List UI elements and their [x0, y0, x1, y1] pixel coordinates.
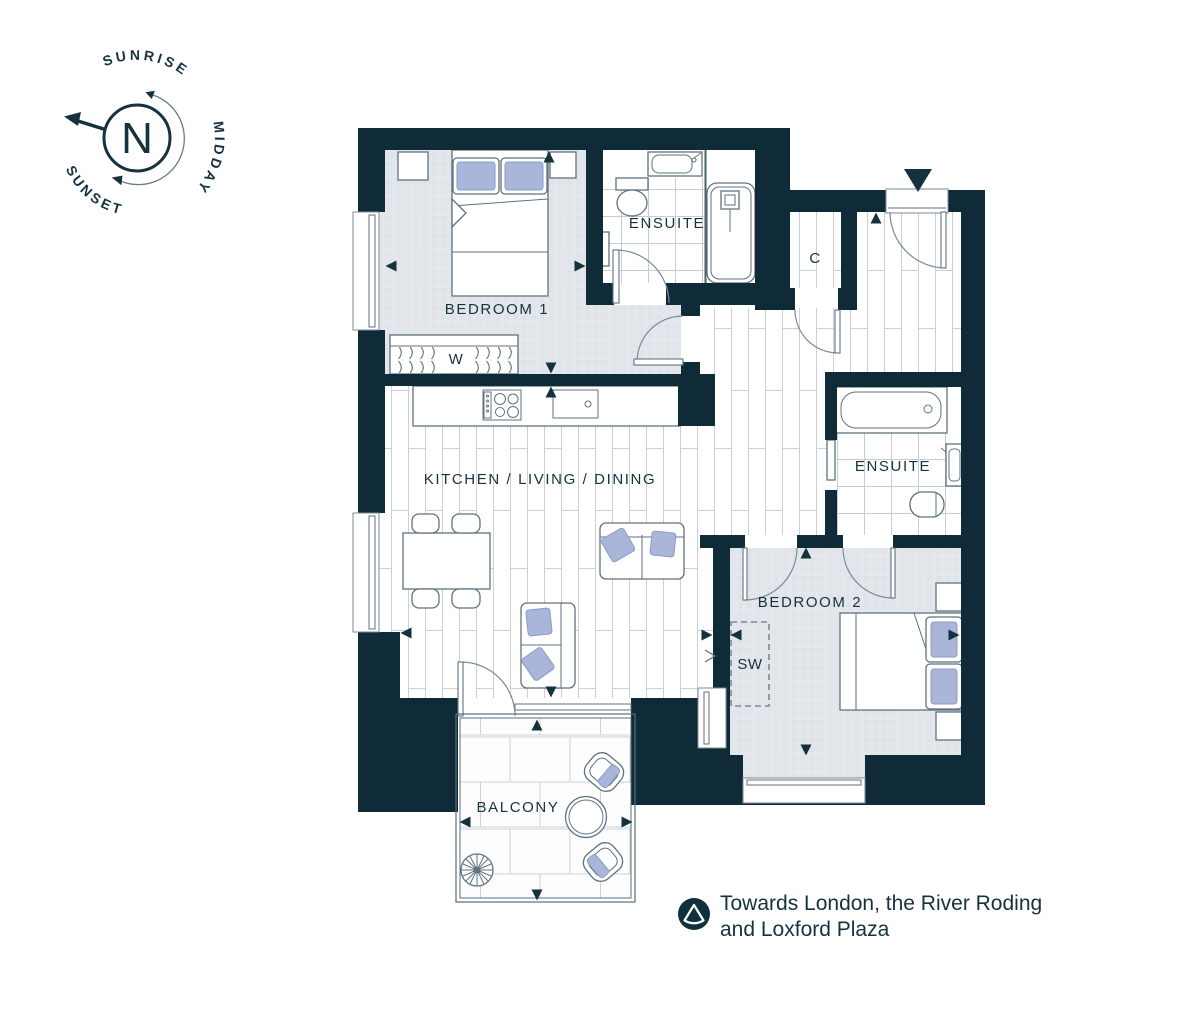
toilet-icon-2	[910, 492, 944, 517]
caption-line2: and Loxford Plaza	[720, 918, 890, 941]
kitchen-counter	[413, 386, 680, 426]
ensuite2-label: ENSUITE	[855, 458, 931, 475]
caption: Towards London, the River Roding and Lox…	[678, 892, 1042, 941]
hall-floor-corridor	[700, 374, 827, 535]
nightstand	[398, 152, 428, 180]
wardrobe-label: W	[449, 351, 464, 368]
ensuite1-label: ENSUITE	[629, 215, 705, 232]
bedroom1-label: BEDROOM 1	[445, 301, 549, 318]
balcony-table	[566, 797, 607, 838]
hall-floor-upper	[700, 308, 961, 374]
compass: N SUNRISE MIDDAY SUNSET	[63, 47, 228, 218]
compass-sunset-label: SUNSET	[63, 163, 126, 218]
nightstand	[936, 583, 963, 611]
bedroom1-window	[353, 212, 379, 330]
cupboard-label: C	[809, 250, 820, 267]
bedroom2-side-window	[698, 688, 726, 748]
north-arrow-head	[64, 112, 81, 126]
balcony-window-strip	[458, 698, 631, 716]
kitchen-living-dining-label: KITCHEN / LIVING / DINING	[424, 471, 657, 488]
towel-rail-2	[827, 440, 835, 480]
caption-line1: Towards London, the River Roding	[720, 892, 1042, 915]
sliding-wardrobe-label: SW	[737, 656, 763, 673]
view-direction-icon	[678, 898, 710, 930]
bedroom2-label: BEDROOM 2	[758, 594, 862, 611]
sink-icon	[648, 152, 702, 176]
sofa-1	[600, 523, 684, 579]
double-bed-2	[840, 613, 965, 710]
plant-icon	[461, 854, 493, 886]
toilet-icon	[616, 178, 648, 216]
bathtub-icon	[835, 387, 947, 433]
floorplan-svg: N SUNRISE MIDDAY SUNSET	[0, 0, 1200, 1011]
floorplan-page: N SUNRISE MIDDAY SUNSET	[0, 0, 1200, 1011]
living-window	[353, 513, 379, 632]
double-bed-1	[452, 150, 548, 296]
compass-north-label: N	[121, 114, 153, 163]
sofa-2	[521, 603, 575, 688]
entrance-recess	[886, 189, 948, 213]
nightstand	[936, 712, 963, 740]
shower-icon	[707, 183, 755, 283]
sun-path-arrowhead-end	[112, 176, 123, 186]
ensuite2-floor	[837, 433, 961, 535]
compass-sunrise-label: SUNRISE	[100, 47, 192, 79]
bedroom2-window	[743, 755, 865, 803]
balcony-label: BALCONY	[477, 799, 560, 816]
compass-midday-label: MIDDAY	[193, 120, 228, 198]
nightstand	[550, 152, 576, 178]
